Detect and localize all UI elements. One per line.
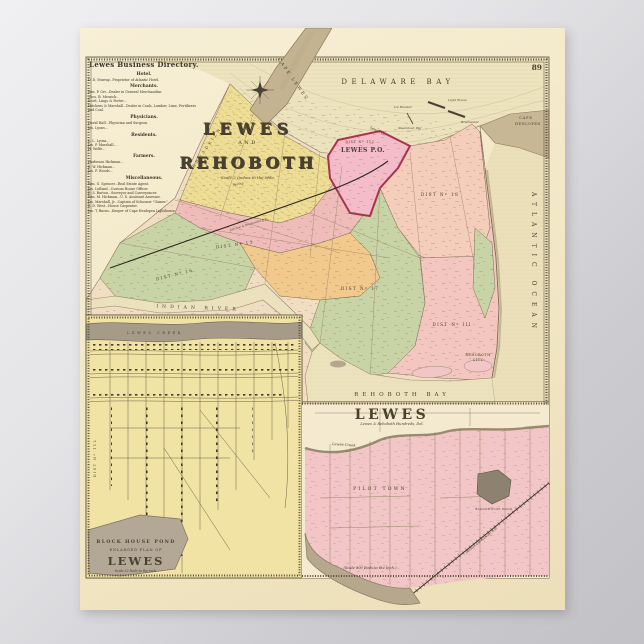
light-house-label: Light House: [447, 98, 467, 102]
inset1-pond-label: BLOCK HOUSE POND: [96, 539, 175, 545]
directory-heading: Farmers.: [88, 154, 200, 159]
map-sheet: 89 DELAWARE BAY CAPE LEWES LEWES LEWES A…: [80, 28, 565, 610]
directory-entry: Hitchens & Marshall...Dealer in Coals, L…: [88, 104, 200, 113]
lewes-po-label: LEWES P.O.: [341, 147, 385, 154]
rehoboth-city-label-1: REHOBOTH: [465, 353, 490, 357]
directory-entry: Jas. T. Burns...Keeper of Cape Henlopen …: [88, 209, 200, 213]
breakwater-label: Breakwater: [460, 120, 479, 124]
inset-hundreds: [302, 402, 549, 605]
atlantic-ocean-label: ATLANTIC OCEAN: [530, 191, 537, 334]
inset2-pond-label: BLOCKHOUSE POND: [475, 507, 513, 511]
directory-entry: D. D. Murray...Proprietor of Atlantic Ho…: [88, 78, 200, 82]
inset2-scale-note: (Scale 800 Rods to the Inch.): [344, 566, 398, 570]
inset1-subtitle: ENLARGED PLAN OF: [110, 548, 163, 552]
dist-18-label: DIST Nº 18: [421, 192, 459, 197]
inset2-subtitle: Lewes & Rehoboth Hundreds, Del.: [359, 422, 423, 426]
steamboat-pier-label: Steamboat Pier: [398, 126, 422, 130]
plate-number: 89: [532, 63, 542, 72]
directory-title: Lewes Business Directory.: [88, 60, 200, 69]
directory-entry: H. Wolfe...: [88, 147, 200, 151]
delaware-bay-label: DELAWARE BAY: [341, 78, 454, 86]
dist-iii-label: DIST Nº III: [432, 322, 471, 327]
lewes-po-dist-label: DIST Nº 112: [345, 140, 374, 144]
inset1-scale-note: Scale 32 Rods to the Inch.: [115, 569, 157, 573]
cape-henlopen-label-1: CAPE: [519, 116, 533, 120]
inset1-title: LEWES: [108, 554, 165, 568]
inset1-district-label: DIST Nº 112: [93, 439, 97, 477]
business-directory: Lewes Business Directory. Hotel. D. D. M…: [88, 60, 200, 213]
directory-heading: Miscellaneous.: [88, 176, 200, 181]
directory-entry: Jas. Lyons...: [88, 126, 200, 130]
directory-heading: Residents.: [88, 133, 200, 138]
main-title-and: AND: [237, 140, 258, 146]
directory-heading: Merchants.: [88, 84, 200, 89]
directory-heading: Hotel.: [88, 72, 200, 77]
inset-creek: [86, 322, 302, 342]
rehoboth-city-label-2: CITY: [473, 358, 484, 362]
inset1-creek-label: LEWES CREEK: [127, 331, 183, 335]
cape-henlopen-label-2: HENLOPEN: [515, 122, 541, 126]
directory-heading: Physicians.: [88, 115, 200, 120]
rehoboth-bay-label: REHOBOTH BAY: [354, 392, 450, 398]
pilot-town-label: PILOT TOWN: [353, 486, 407, 492]
directory-entry: Jas. P. Woods...: [88, 169, 200, 173]
ice-breaker-label: Ice Breaker: [393, 105, 412, 109]
inset2-title: LEWES: [355, 407, 430, 423]
poster-background: 89 DELAWARE BAY CAPE LEWES LEWES LEWES A…: [0, 0, 644, 644]
main-scale-note: Scale 2 Inches to the Mile.: [221, 175, 275, 180]
inset-town-plan: [86, 315, 302, 578]
dist-17-label: DIST Nº 17: [341, 286, 379, 291]
